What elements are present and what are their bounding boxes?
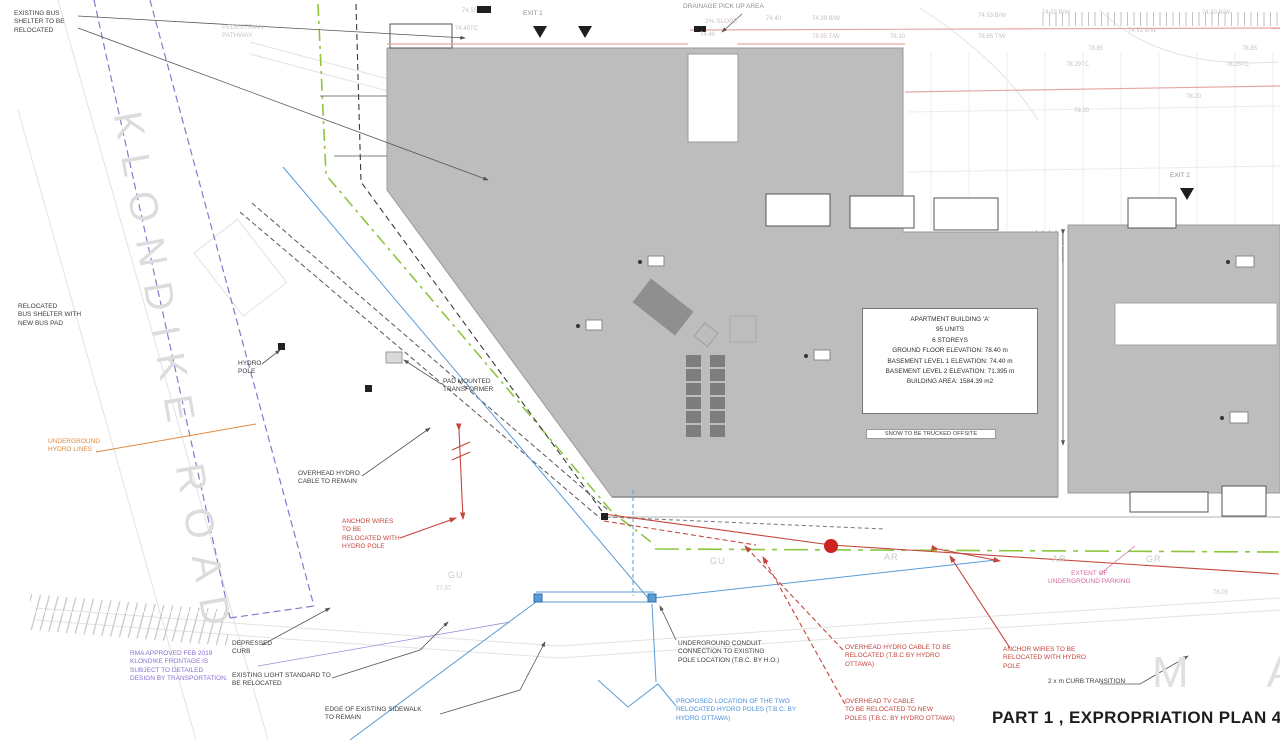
label-exit-2: EXIT 2 [1170,172,1190,180]
note-extent-parking: EXTENT OF UNDERGROUND PARKING [1048,570,1131,587]
spot-elevation: 78.85 [1088,46,1103,52]
zone-label: AR [884,552,899,562]
spot-elevation: 78.29TC [1066,62,1089,68]
spot-elevation: 78.95 T/W [812,34,840,40]
building-b-notch [1115,303,1277,345]
label-exit-1: EXIT 1 [523,10,543,18]
note-light-standard: EXISTING LIGHT STANDARD TO BE RELOCATED [232,672,331,689]
spot-elevation: 74.45TC [455,26,478,32]
note-depressed-curb: DEPRESSED CURB [232,640,272,657]
pad-transformer-marker [386,352,402,363]
note-tv-cable: OVERHEAD TV CABLE TO BE RELOCATED TO NEW… [845,698,955,723]
note-anchor-wires-left: ANCHOR WIRES TO BE RELOCATED WITH HYDRO … [342,518,400,552]
spot-elevation: 78.05 [1213,590,1228,596]
spot-elevation: 78.25TC [1226,62,1249,68]
spot-elevation: 74.53 B/W [1128,28,1156,34]
retaining-wall-hatch-top [1038,12,1278,26]
note-slope: 2% SLOPE [705,18,738,26]
note-relocated-bus-shelter: RELOCATED BUS SHELTER WITH NEW BUS PAD [18,303,81,328]
spot-elevation: 74.50 B/W [1202,10,1230,16]
spot-elevation: 74.40 [766,16,781,22]
spot-elevation: 77.97 [436,586,451,592]
relocated-pole-marker [824,539,838,553]
spot-elevation: 78.85 T/W [978,34,1006,40]
rma-note-leader [258,622,510,666]
note-overhead-cable-relocate: OVERHEAD HYDRO CABLE TO BE RELOCATED (T.… [845,644,951,669]
note-curb-transition: 2 x m CURB TRANSITION [1048,678,1125,686]
snow-note-box: SNOW TO BE TRUCKED OFFSITE [866,429,996,439]
spot-elevation: 74.53 B/W [978,13,1006,19]
proposed-pole-markers [534,594,656,602]
note-proposed-poles: PROPOSED LOCATION OF THE TWO RELOCATED H… [676,698,796,723]
zone-label: GR [1146,554,1162,564]
spot-elevation: 78.85 [1242,46,1257,52]
zone-label: GU [448,570,464,580]
note-hydro-pole: HYDRO POLE [238,360,261,377]
spot-elevation: 78.10 [1074,108,1089,114]
note-rma-approved: RMA APPROVED FEB 2019 KLONDIKE FRONTAGE … [130,650,228,684]
note-overhead-cable-remain: OVERHEAD HYDRO CABLE TO REMAIN [298,470,360,487]
spot-elevation: 78.10 [890,34,905,40]
plan-title: PART 1 , EXPROPRIATION PLAN 4 [992,708,1280,728]
note-sidewalk-edge: EDGE OF EXISTING SIDEWALK TO REMAIN [325,706,422,723]
note-drainage-pickup: DRAINAGE PICK UP AREA [683,3,764,11]
zone-label: GU [710,556,726,566]
note-underground-hydro: UNDERGROUND HYDRO LINES [48,438,100,455]
spot-elevation: 74.39 B/W [812,16,840,22]
street-name-ma: M A [1152,648,1280,698]
zone-label: AR [1052,554,1067,564]
note-pad-transformer: PAD MOUNTED TRANSFORMER [443,378,493,395]
note-pedestrian-pathway: PEDESTRIAN PATHWAY [222,24,264,41]
note-existing-bus-shelter: EXISTING BUS SHELTER TO BE RELOCATED [14,10,65,35]
spot-elevation: 74.53 B/W [1042,10,1070,16]
spot-elevation: 78.20 [1186,94,1201,100]
spot-elevation: 74.55 [462,8,477,14]
building-a-label-box: APARTMENT BUILDING 'A' 95 UNITS 6 STOREY… [862,308,1038,414]
note-anchor-wires-right: ANCHOR WIRES TO BE RELOCATED WITH HYDRO … [1003,646,1086,671]
building-a-entry-notch [688,54,738,142]
spot-elevation: 74.40 [700,32,715,38]
expropriation-plan-canvas: KLONDIKE ROAD M A EXISTING BUS SHELTER T… [0,0,1280,740]
note-underground-conduit: UNDERGROUND CONDUIT CONNECTION TO EXISTI… [678,640,779,665]
